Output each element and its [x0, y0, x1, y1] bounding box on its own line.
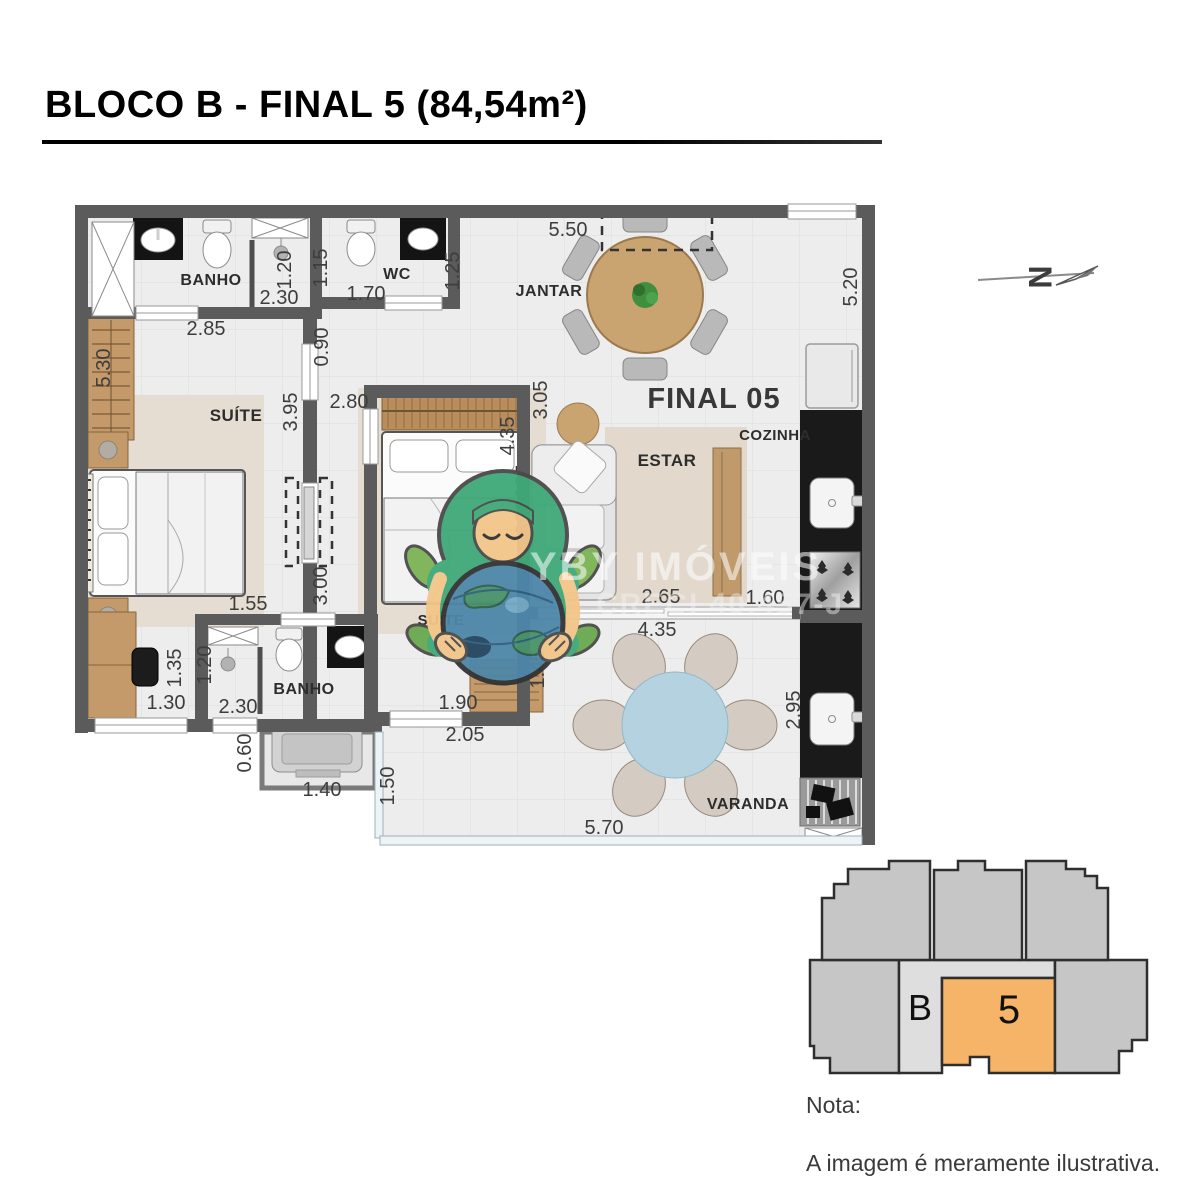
room-label: ESTAR — [638, 451, 697, 470]
keyplan-unit-gray — [1055, 960, 1147, 1073]
dimension-label: 2.30 — [219, 696, 258, 718]
desk-chair — [132, 648, 158, 686]
room-label: BANHO — [273, 681, 334, 698]
shower-hatch — [208, 627, 258, 645]
dimension-label: 1.55 — [229, 593, 268, 615]
dimension-label: 5.30 — [93, 349, 115, 388]
dimension-label: 1.50 — [377, 767, 399, 806]
keyplan-unit-gray — [822, 861, 930, 960]
room-label: SUÍTE — [210, 406, 263, 425]
unit-label: FINAL 05 — [647, 383, 780, 415]
watermark-name: YBY IMÓVEIS — [530, 543, 822, 589]
north-arrow: N — [978, 265, 1098, 288]
keyplan-unit-gray — [1026, 861, 1108, 960]
dimension-label: 5.50 — [549, 219, 588, 241]
keyplan-block-label: B — [908, 987, 932, 1028]
north-label: N — [1022, 265, 1058, 288]
dimension-label: 5.20 — [840, 268, 862, 307]
dimension-label: 1.90 — [439, 692, 478, 714]
kitchen-sink — [810, 478, 854, 528]
dimension-label: 2.95 — [783, 691, 805, 730]
dimension-label: 1.30 — [147, 692, 186, 714]
room-label: COZINHA — [739, 427, 811, 444]
shower-drain — [221, 657, 235, 671]
toilet — [276, 628, 302, 671]
toilet — [347, 220, 375, 266]
note-heading: Nota: — [806, 1092, 861, 1119]
glass-table — [622, 672, 728, 778]
keyplan-unit-gray — [810, 960, 899, 1073]
toilet — [203, 220, 231, 268]
shaft-hatch — [92, 222, 134, 316]
bed — [84, 470, 245, 596]
varanda-sink — [810, 693, 854, 745]
dimension-label: 3.05 — [530, 381, 552, 420]
dimension-label: 2.30 — [260, 287, 299, 309]
keyplan-unit-gray — [934, 861, 1022, 960]
dimension-label: 2.85 — [187, 318, 226, 340]
dimension-label: 0.90 — [311, 328, 333, 367]
dimension-label: 4.35 — [497, 417, 519, 456]
note-body: A imagem é meramente ilustrativa. — [806, 1150, 1160, 1177]
dimension-label: 1.40 — [303, 779, 342, 801]
dimension-label: 1.15 — [310, 249, 332, 288]
dimension-label: 1.25 — [442, 252, 464, 291]
side-table — [557, 403, 599, 445]
dimension-label: 2.80 — [330, 391, 369, 413]
grill — [800, 778, 860, 826]
dimension-label: 4.35 — [638, 619, 677, 641]
room-label: WC — [383, 266, 411, 283]
dimension-label: 2.05 — [446, 724, 485, 746]
dimension-label: 1.20 — [194, 646, 216, 685]
fridge — [806, 344, 858, 408]
keyplan: B 5 — [802, 858, 1158, 1080]
keyplan-unit-number: 5 — [998, 988, 1020, 1032]
dimension-label: 1.70 — [347, 283, 386, 305]
dimension-label: 3.95 — [280, 393, 302, 432]
floorplan-page: BLOCO B - FINAL 5 (84,54m²) — [0, 0, 1200, 1200]
dimension-label: 5.70 — [585, 817, 624, 839]
shower-hatch — [252, 218, 308, 238]
dimension-label: 0.60 — [234, 734, 256, 773]
room-label: JANTAR — [516, 283, 583, 300]
room-label: BANHO — [180, 272, 241, 289]
dimension-label: 1.20 — [274, 251, 296, 290]
dimension-label: 3.00 — [310, 567, 332, 606]
dimension-label: 1.35 — [164, 649, 186, 688]
room-label: VARANDA — [707, 796, 789, 813]
watermark-creci: CRECI 40.457-J — [596, 588, 844, 621]
